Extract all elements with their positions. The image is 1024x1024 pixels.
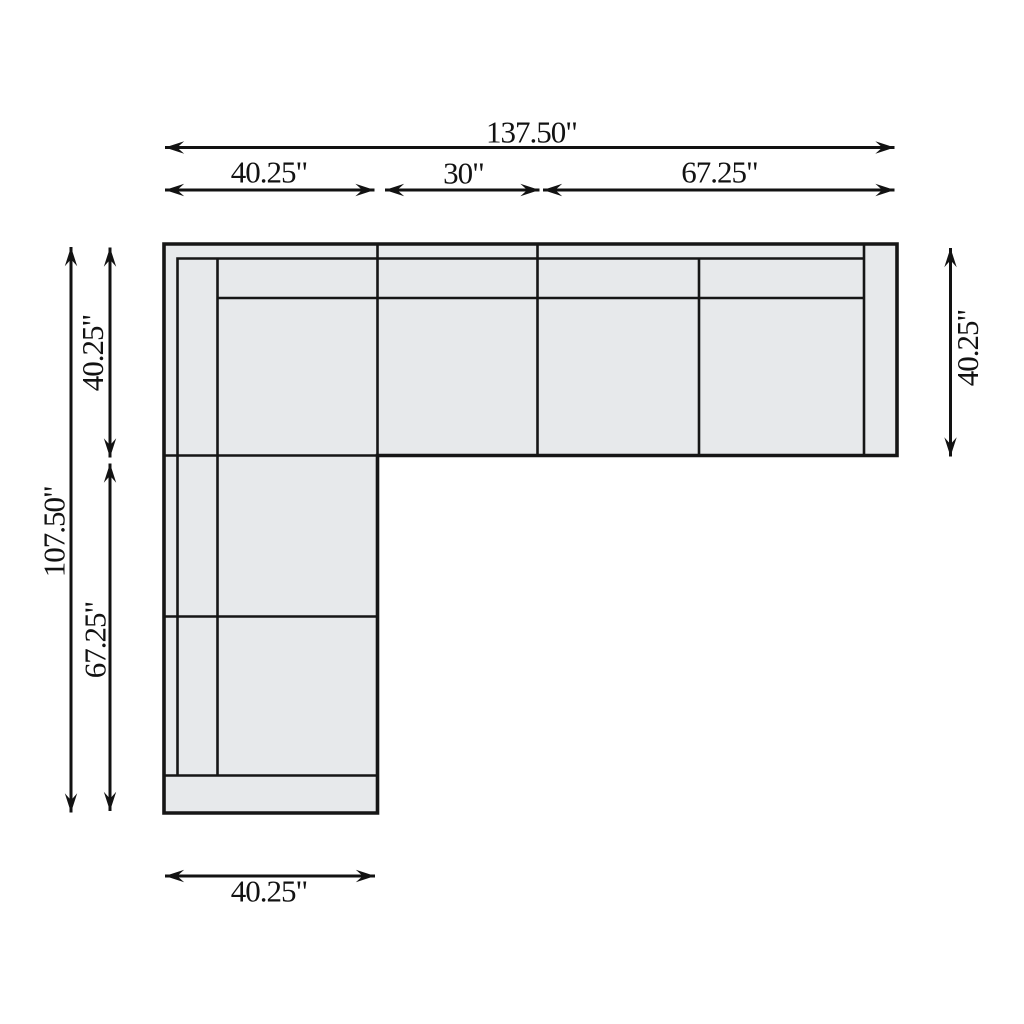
svg-text:40.25": 40.25"	[231, 155, 307, 190]
svg-text:40.25": 40.25"	[950, 310, 985, 386]
svg-text:40.25": 40.25"	[231, 874, 307, 909]
svg-text:30": 30"	[443, 156, 484, 191]
svg-text:67.25": 67.25"	[681, 155, 757, 190]
svg-text:67.25": 67.25"	[78, 602, 113, 678]
svg-text:40.25": 40.25"	[75, 315, 110, 391]
svg-text:137.50": 137.50"	[486, 115, 577, 150]
svg-text:107.50": 107.50"	[37, 486, 72, 577]
